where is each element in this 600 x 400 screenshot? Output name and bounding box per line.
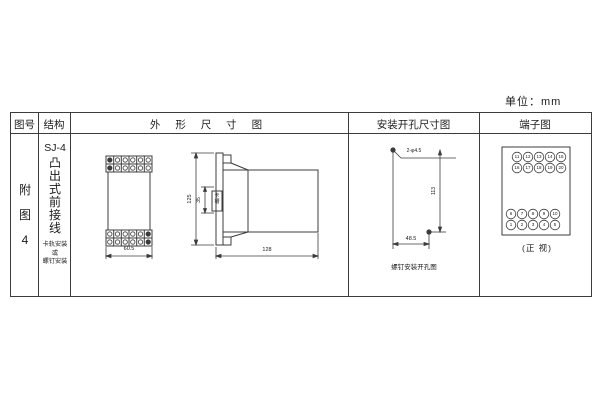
dim-hole-vertical: 113 xyxy=(431,181,437,201)
terminal-number: 19 xyxy=(545,165,556,171)
unit-label: 单位：mm xyxy=(505,93,561,109)
dim-hole-horizontal: 48.5 xyxy=(399,236,423,242)
figure-number-vertical: 附图4 xyxy=(18,178,32,253)
terminal-number: 9 xyxy=(539,211,550,217)
mounting-note-line: 或 xyxy=(40,250,70,258)
model-name: SJ-4 xyxy=(39,142,71,154)
slot-label: 卡槽 xyxy=(214,194,220,205)
terminal-number: 1 xyxy=(506,222,517,228)
dim-depth: 128 xyxy=(255,247,279,253)
mounting-caption: 螺钉安装开孔图 xyxy=(369,261,459,271)
mounting-note: 卡轨安装 或 螺钉安装 xyxy=(39,241,71,267)
terminal-number: 12 xyxy=(523,154,534,160)
terminal-number: 3 xyxy=(528,222,539,228)
terminal-number: 18 xyxy=(534,165,545,171)
terminal-number: 20 xyxy=(556,165,567,171)
terminal-number: 14 xyxy=(545,154,556,160)
terminal-number: 8 xyxy=(528,211,539,217)
mounting-note-line: 卡轨安装 xyxy=(40,241,70,249)
terminal-number: 10 xyxy=(550,211,561,217)
table-divider xyxy=(348,113,349,296)
dim-hole-diameter: 2-φ4.5 xyxy=(401,148,427,154)
terminal-number: 17 xyxy=(523,165,534,171)
terminal-number: 16 xyxy=(512,165,523,171)
terminal-number: 11 xyxy=(512,154,523,160)
header-terminal: 端子图 xyxy=(479,117,591,132)
terminal-number: 2 xyxy=(517,222,528,228)
header-divider xyxy=(11,133,591,134)
dim-slot-height: 35 xyxy=(196,192,202,208)
terminal-caption: (正 视) xyxy=(505,242,569,254)
dim-height: 125 xyxy=(187,189,193,209)
table-divider xyxy=(479,113,480,296)
terminal-number: 4 xyxy=(539,222,550,228)
header-figure-no: 图号 xyxy=(11,117,38,132)
terminal-number: 15 xyxy=(556,154,567,160)
spec-table: 图号 结构 外 形 尺 寸 图 安装开孔尺寸图 端子图 附图4 SJ-4 凸出式… xyxy=(10,112,592,297)
structure-type-vertical: 凸出式前接线 xyxy=(48,157,62,235)
header-mounting: 安装开孔尺寸图 xyxy=(348,117,479,132)
dim-front-width: 60.5 xyxy=(117,246,141,252)
terminal-number: 6 xyxy=(506,211,517,217)
header-structure: 结构 xyxy=(38,117,70,132)
terminal-number: 13 xyxy=(534,154,545,160)
cell-figure-no: 附图4 xyxy=(11,134,39,296)
terminal-number: 5 xyxy=(550,222,561,228)
mounting-note-line: 螺钉安装 xyxy=(40,258,70,266)
drawing-sheet: 单位：mm 图号 结构 外 形 尺 寸 图 安装开孔尺寸图 端子图 附图4 SJ… xyxy=(0,0,600,400)
terminal-number: 7 xyxy=(517,211,528,217)
cell-structure: SJ-4 凸出式前接线 卡轨安装 或 螺钉安装 xyxy=(39,134,71,296)
header-outline: 外 形 尺 寸 图 xyxy=(70,117,348,132)
